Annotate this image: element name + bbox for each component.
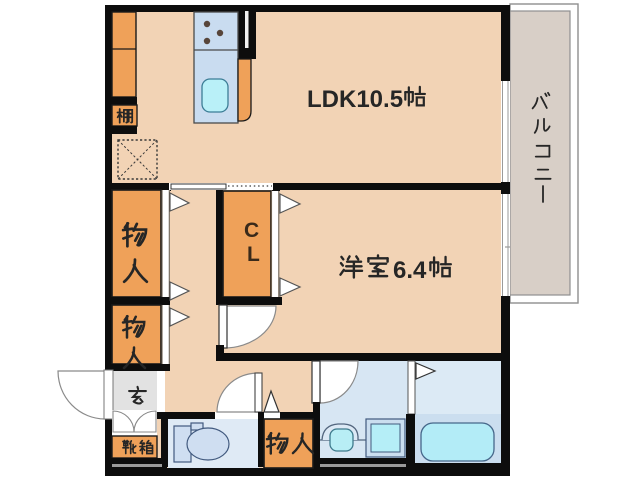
svg-text:C: C [244,219,259,242]
svg-text:L: L [247,243,260,266]
svg-text:LDK10.5: LDK10.5 [307,86,403,113]
svg-text:6.4: 6.4 [393,257,427,284]
